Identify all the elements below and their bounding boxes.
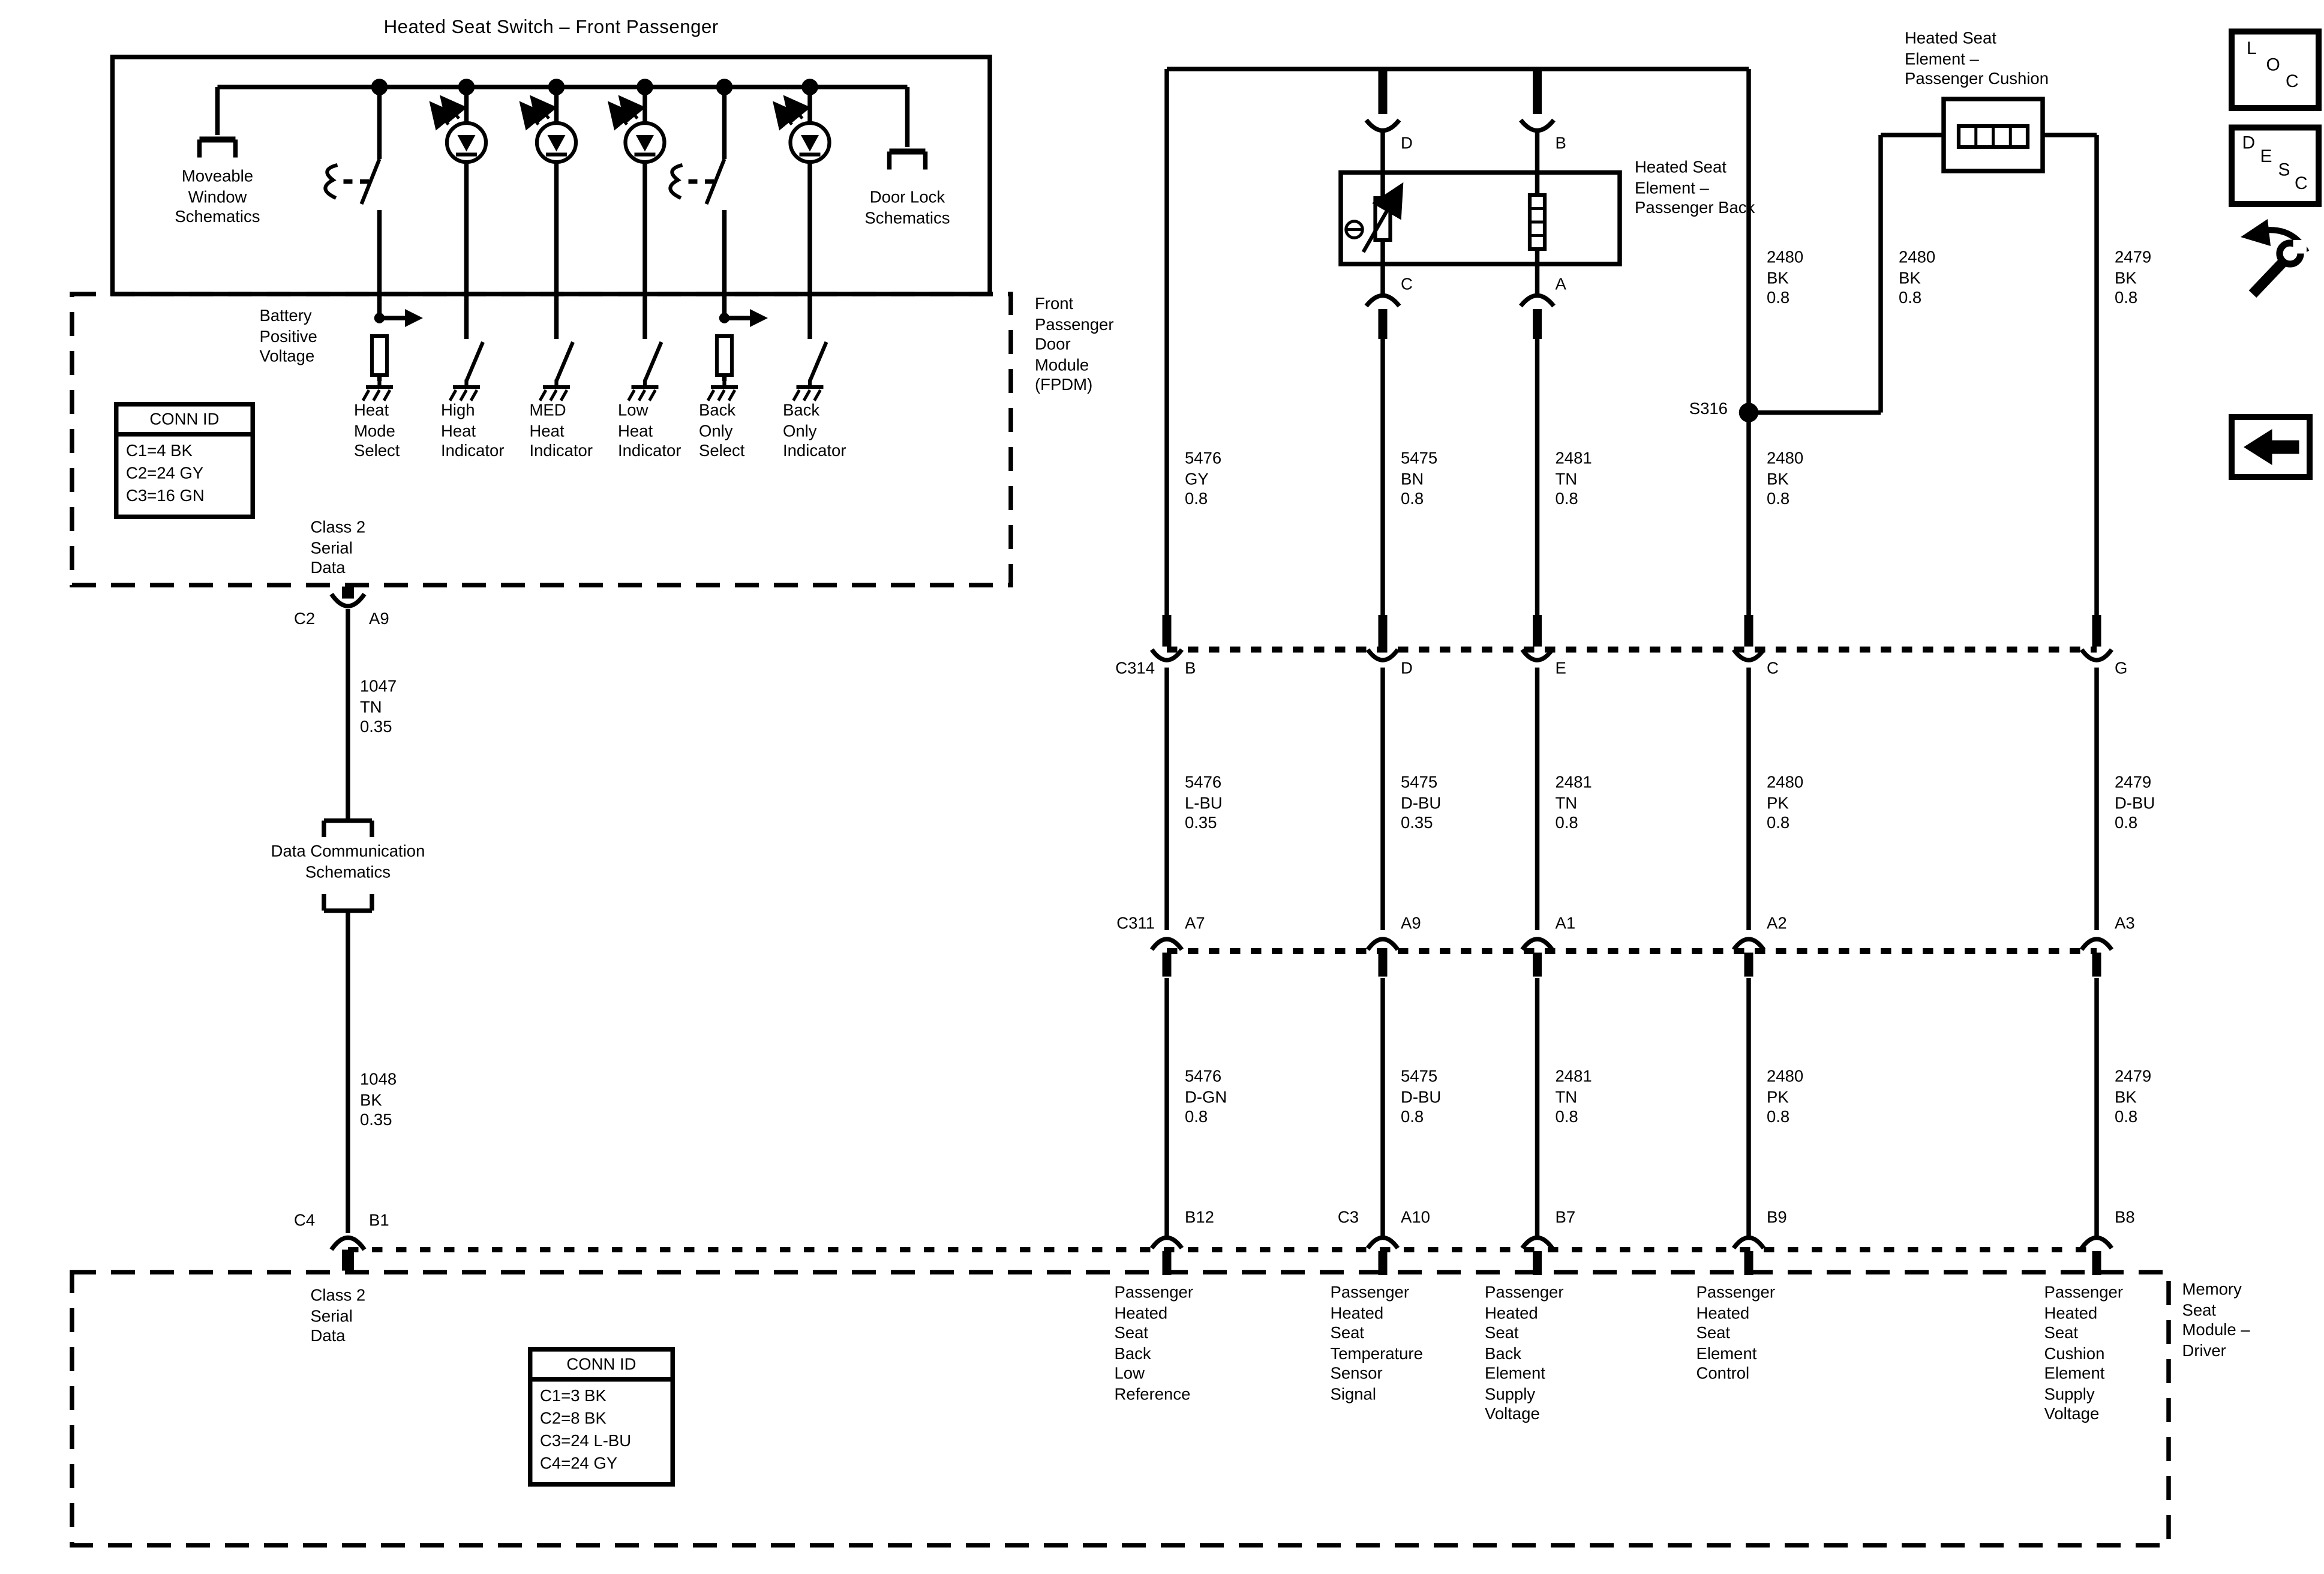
wire-5475-dbu-label2: 5475 D-BU 0.8 (1401, 1068, 1441, 1129)
wire-5476-lbu-label: 5476 L-BU 0.35 (1185, 774, 1223, 835)
temperature-sensor-icon (1346, 192, 1398, 252)
driver-switch-icon (467, 342, 484, 381)
battery-positive-voltage-label: Battery Positive Voltage (260, 308, 317, 368)
c314-pin-c: C (1767, 660, 1779, 680)
col-heat-mode-select: Heat Mode Select (354, 402, 400, 463)
pin-function-back-low-reference: Passenger Heated Seat Back Low Reference (1115, 1284, 1193, 1406)
ground-icon (450, 380, 480, 401)
wire-5476-gy-label: 5476 GY 0.8 (1185, 450, 1221, 511)
c311-pin-a1: A1 (1556, 915, 1576, 936)
door-lock-ref: Door Lock Schematics (827, 189, 989, 230)
memory-module-pin-icon (1152, 1238, 1182, 1276)
memory-module-pin-icon (1368, 1238, 1398, 1276)
wire-2480-bk-label: 2480 BK 0.8 (1767, 450, 1803, 511)
pin-b9-label: B9 (1767, 1209, 1787, 1230)
cushion-heater-element-icon (1959, 126, 2028, 147)
desc-letter: S (2278, 161, 2290, 179)
c314-junction-icon (2082, 615, 2112, 660)
c311-junction-icon (1152, 939, 1182, 977)
c311-junction-icon (1734, 939, 1764, 977)
connector-c2-label: C2 (294, 611, 315, 631)
c314-pin-g: G (2115, 660, 2127, 680)
c314-junction-icon (1523, 615, 1553, 660)
pin-function-temp-sensor-signal: Passenger Heated Seat Temperature Sensor… (1331, 1284, 1423, 1406)
driver-switch-icon (557, 342, 574, 381)
pin-function-element-control: Passenger Heated Seat Element Control (1697, 1284, 1775, 1386)
ground-icon (794, 380, 824, 401)
driver-switch-icon (645, 342, 662, 381)
connector-c3-label: C3 (1290, 1209, 1359, 1230)
conn-id-header: CONN ID (119, 407, 251, 437)
pin-b1-label: B1 (369, 1212, 389, 1233)
data-communication-ref: Data Communication Schematics (236, 843, 461, 884)
col-med-heat-indicator: MED Heat Indicator (530, 402, 593, 463)
memory-module-pin-icon (1523, 1238, 1553, 1276)
wire-2479-bk-label2: 2479 BK 0.8 (2115, 1068, 2151, 1129)
pin-b8-label: B8 (2115, 1209, 2135, 1230)
wire-2481-tn-label2: 2481 TN 0.8 (1556, 774, 1592, 835)
conn-id-rows: C1=3 BK C2=8 BK C3=24 L-BU C4=24 GY (533, 1382, 671, 1483)
c314-junction-icon (1368, 615, 1398, 660)
wire-5475-bn-label: 5475 BN 0.8 (1401, 450, 1437, 511)
loc-letter: L (2247, 39, 2257, 57)
connector-c311-label: C311 (1092, 915, 1155, 936)
connector-c2-icon (332, 587, 365, 607)
desc-nav-icon[interactable]: D E S C (2229, 125, 2322, 208)
pin-c-label: C (1401, 276, 1413, 296)
conn-id-header: CONN ID (533, 1352, 671, 1382)
wire-1047-tn-label: 1047 TN 0.35 (360, 678, 397, 739)
pin-b-label: B (1556, 135, 1566, 155)
connector-pin-d-icon (1367, 69, 1400, 131)
heat-mode-switch-icon (325, 159, 379, 204)
c314-pin-e: E (1556, 660, 1566, 680)
connector-pin-c-icon (1367, 296, 1400, 340)
back-arrow-icon[interactable] (2232, 417, 2310, 477)
conn-id-table-fpdm: CONN ID C1=4 BK C2=24 GY C3=16 GN (114, 402, 255, 519)
c311-junction-icon (2082, 939, 2112, 977)
resistor-icon (717, 336, 732, 375)
resistor-icon (372, 336, 387, 375)
wire-1048-bk-label: 1048 BK 0.35 (360, 1071, 397, 1132)
c314-junction-icon (1734, 615, 1764, 660)
pin-b7-label: B7 (1556, 1209, 1576, 1230)
wire-2481-tn-label: 2481 TN 0.8 (1556, 450, 1592, 511)
loc-letter: C (2286, 72, 2299, 90)
c311-pin-a2: A2 (1767, 915, 1787, 936)
diagram-title: Heated Seat Switch – Front Passenger (113, 18, 990, 38)
moveable-window-ref: Moveable Window Schematics (143, 168, 293, 229)
seat-back-element-label: Heated Seat Element – Passenger Back (1635, 159, 1755, 220)
c314-pin-d: D (1401, 660, 1413, 680)
c311-junction-icon (1368, 939, 1398, 977)
seat-cushion-element-label: Heated Seat Element – Passenger Cushion (1905, 30, 2049, 91)
inline-connector-rows (348, 650, 2097, 1250)
desc-letter: E (2260, 147, 2272, 165)
desc-letter: C (2295, 174, 2308, 192)
wire-5476-dgn-label: 5476 D-GN 0.8 (1185, 1068, 1227, 1129)
connector-c4-label: C4 (294, 1212, 315, 1233)
col-back-only-select: Back Only Select (699, 402, 744, 463)
pin-b12-label: B12 (1185, 1209, 1214, 1230)
wire-2480-pk-label: 2480 PK 0.8 (1767, 774, 1803, 835)
wiring-diagram-page: Heated Seat Switch – Front Passenger Mov… (0, 0, 2324, 1574)
pin-a9-label: A9 (369, 611, 389, 631)
ground-icon (363, 380, 393, 401)
back-only-led-icon (779, 102, 830, 162)
connector-c314-label: C314 (1092, 660, 1155, 680)
fpdm-module-label: Front Passenger Door Module (FPDM) (1035, 296, 1113, 397)
driver-switch-icon (810, 342, 827, 381)
wire-2480-pk-label2: 2480 PK 0.8 (1767, 1068, 1803, 1129)
splice-s316-label: S316 (1650, 401, 1728, 421)
wrench-arrow-icon[interactable] (2241, 219, 2307, 294)
class2-serial-data-bottom: Class 2 Serial Data (311, 1287, 366, 1348)
wire-2479-dbu-label: 2479 D-BU 0.8 (2115, 774, 2155, 835)
wire-2479-bk-upper-label: 2479 BK 0.8 (2115, 249, 2151, 310)
c311-pin-a3: A3 (2115, 915, 2135, 936)
ground-icon (708, 380, 738, 401)
connector-pin-a-icon (1521, 296, 1554, 340)
c311-pin-a9: A9 (1401, 915, 1421, 936)
pin-function-cushion-element-supply: Passenger Heated Seat Cushion Element Su… (2044, 1284, 2123, 1426)
col-back-only-indicator: Back Only Indicator (783, 402, 846, 463)
c314-junction-icon (1152, 615, 1182, 660)
pin-a10-label: A10 (1401, 1209, 1430, 1230)
loc-letter: O (2266, 56, 2280, 74)
c311-junction-icon (1523, 939, 1553, 977)
ground-icon (629, 380, 659, 401)
col-high-heat-indicator: High Heat Indicator (441, 402, 505, 463)
wire-2481-tn-label3: 2481 TN 0.8 (1556, 1068, 1592, 1129)
desc-letter: D (2242, 134, 2256, 152)
c311-pin-a7: A7 (1185, 915, 1205, 936)
wire-5475-dbu-label: 5475 D-BU 0.35 (1401, 774, 1441, 835)
pin-function-back-element-supply: Passenger Heated Seat Back Element Suppl… (1485, 1284, 1563, 1426)
ground-icon (540, 380, 570, 401)
col-low-heat-indicator: Low Heat Indicator (618, 402, 681, 463)
loc-nav-icon[interactable]: L O C (2229, 29, 2322, 112)
pin-d-label: D (1401, 135, 1413, 155)
connector-c4-icon (332, 1238, 365, 1271)
pin-a-label: A (1556, 276, 1566, 296)
c314-pin-b: B (1185, 660, 1196, 680)
med-heat-led-icon (525, 102, 576, 162)
wire-2480-bk-cushion-label: 2480 BK 0.8 (1899, 249, 1935, 310)
low-heat-led-icon (614, 102, 665, 162)
back-heater-element-icon (1530, 195, 1545, 249)
memory-seat-module-label: Memory Seat Module – Driver (2182, 1281, 2250, 1362)
conn-id-rows: C1=4 BK C2=24 GY C3=16 GN (119, 437, 251, 515)
class2-serial-data-top: Class 2 Serial Data (311, 519, 366, 580)
high-heat-led-icon (435, 102, 486, 162)
back-only-switch-icon (670, 159, 724, 204)
wire-2480-bk-upper-label: 2480 BK 0.8 (1767, 249, 1803, 310)
conn-id-table-memory: CONN ID C1=3 BK C2=8 BK C3=24 L-BU C4=24… (528, 1347, 675, 1487)
memory-module-pin-icon (2082, 1238, 2112, 1276)
connector-pin-b-icon (1521, 69, 1554, 131)
memory-module-pin-icon (1734, 1238, 1764, 1276)
